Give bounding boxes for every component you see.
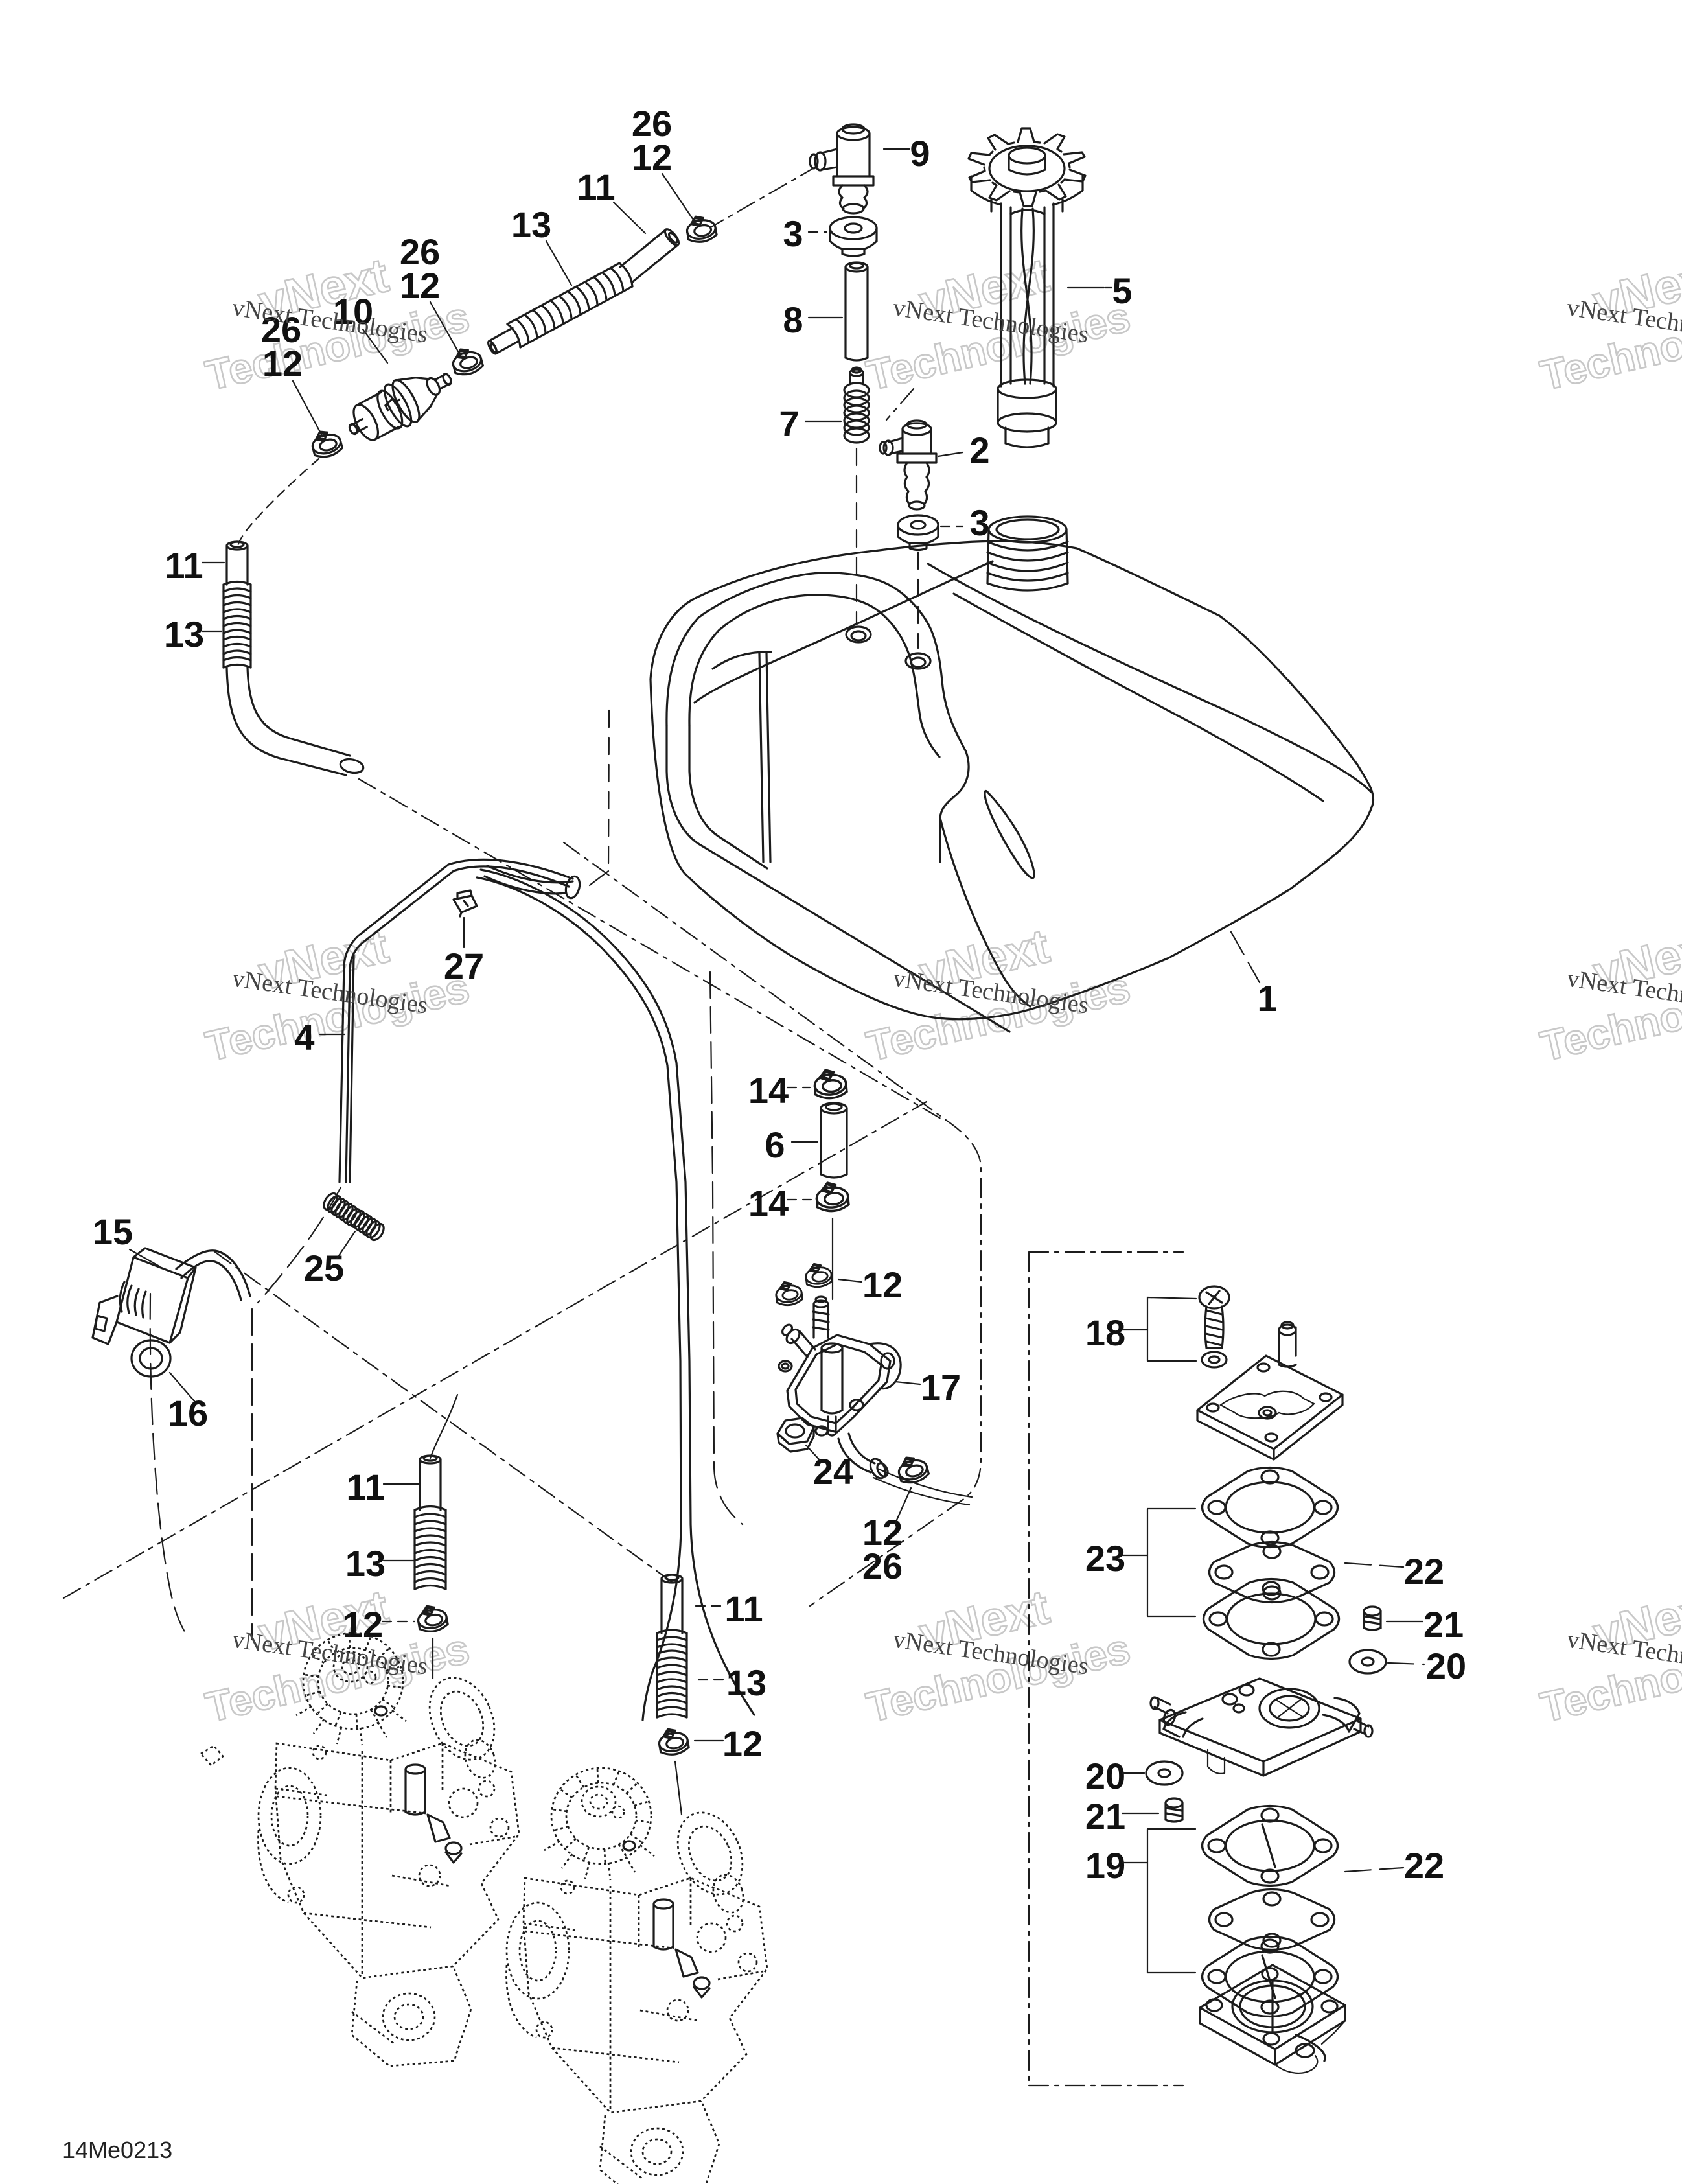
svg-text:21: 21 bbox=[1423, 1604, 1464, 1645]
svg-text:14: 14 bbox=[748, 1183, 789, 1224]
svg-text:20: 20 bbox=[1085, 1756, 1125, 1796]
svg-text:24: 24 bbox=[813, 1451, 853, 1492]
svg-text:11: 11 bbox=[724, 1588, 763, 1629]
svg-text:17: 17 bbox=[921, 1367, 961, 1408]
svg-text:12: 12 bbox=[722, 1723, 763, 1764]
svg-text:3: 3 bbox=[969, 502, 989, 543]
svg-text:15: 15 bbox=[93, 1211, 133, 1252]
svg-text:14: 14 bbox=[748, 1070, 789, 1111]
svg-text:22: 22 bbox=[1404, 1845, 1444, 1886]
svg-text:5: 5 bbox=[1112, 270, 1132, 311]
svg-text:11: 11 bbox=[165, 545, 203, 586]
svg-text:13: 13 bbox=[345, 1543, 386, 1584]
svg-text:18: 18 bbox=[1085, 1312, 1125, 1353]
svg-text:13: 13 bbox=[726, 1662, 766, 1703]
svg-text:11: 11 bbox=[577, 167, 615, 207]
svg-text:9: 9 bbox=[910, 133, 930, 174]
svg-text:12: 12 bbox=[632, 137, 672, 178]
svg-text:12: 12 bbox=[400, 265, 440, 306]
svg-text:19: 19 bbox=[1085, 1845, 1125, 1886]
svg-text:21: 21 bbox=[1085, 1796, 1125, 1837]
svg-text:14Me0213: 14Me0213 bbox=[62, 2137, 172, 2163]
svg-text:23: 23 bbox=[1085, 1538, 1125, 1579]
svg-text:2: 2 bbox=[969, 430, 989, 470]
svg-text:8: 8 bbox=[783, 299, 803, 340]
svg-text:12: 12 bbox=[862, 1264, 903, 1305]
svg-text:12: 12 bbox=[262, 343, 303, 384]
svg-text:27: 27 bbox=[444, 946, 484, 986]
svg-text:22: 22 bbox=[1404, 1551, 1444, 1592]
svg-text:25: 25 bbox=[304, 1248, 344, 1288]
svg-text:3: 3 bbox=[783, 213, 803, 254]
svg-text:16: 16 bbox=[168, 1393, 208, 1434]
svg-text:4: 4 bbox=[294, 1017, 314, 1058]
svg-text:11: 11 bbox=[346, 1467, 384, 1507]
svg-text:13: 13 bbox=[511, 204, 551, 245]
svg-text:1: 1 bbox=[1257, 978, 1277, 1019]
svg-text:13: 13 bbox=[164, 614, 204, 655]
svg-text:7: 7 bbox=[779, 403, 799, 444]
svg-text:20: 20 bbox=[1426, 1645, 1466, 1686]
svg-text:6: 6 bbox=[765, 1124, 785, 1165]
